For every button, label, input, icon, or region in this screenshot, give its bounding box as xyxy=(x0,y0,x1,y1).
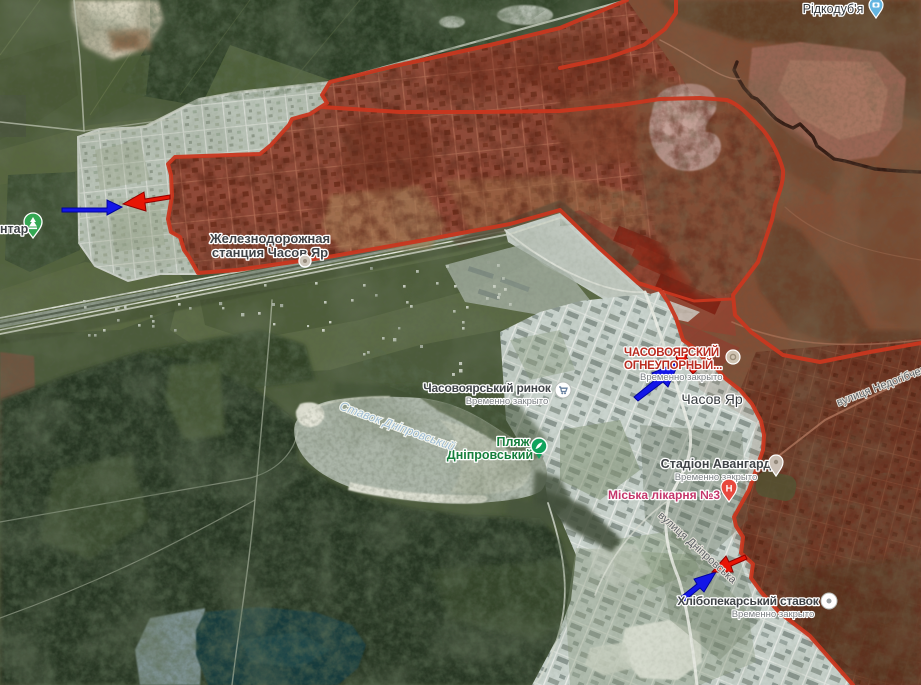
svg-text:Хлібопекарський ставок: Хлібопекарський ставок xyxy=(677,594,819,608)
svg-text:Железнодорожная: Железнодорожная xyxy=(209,231,330,246)
svg-text:Пляж: Пляж xyxy=(496,435,529,449)
svg-text:H: H xyxy=(726,484,733,495)
svg-text:Часовоярський ринок: Часовоярський ринок xyxy=(423,381,552,395)
svg-text:Дніпровський: Дніпровський xyxy=(447,448,533,462)
svg-text:Часов Яр: Часов Яр xyxy=(681,391,742,407)
svg-text:нтар: нтар xyxy=(0,222,29,236)
svg-text:ЧАСОВОЯРСКИЙ: ЧАСОВОЯРСКИЙ xyxy=(624,346,719,359)
svg-text:Временно закрыто: Временно закрыто xyxy=(640,372,723,383)
svg-text:Міська лікарня №3: Міська лікарня №3 xyxy=(608,488,720,502)
svg-text:Временно закрыто: Временно закрыто xyxy=(732,609,815,620)
svg-text:Временно закрыто: Временно закрыто xyxy=(466,396,549,407)
svg-text:Рідкодуб'я: Рідкодуб'я xyxy=(803,2,864,16)
svg-text:Временно закрыто: Временно закрыто xyxy=(675,472,758,483)
svg-text:Стадіон Авангард: Стадіон Авангард xyxy=(661,457,772,471)
svg-text:ОГНЕУПОРНЫЙ...: ОГНЕУПОРНЫЙ... xyxy=(624,359,722,372)
